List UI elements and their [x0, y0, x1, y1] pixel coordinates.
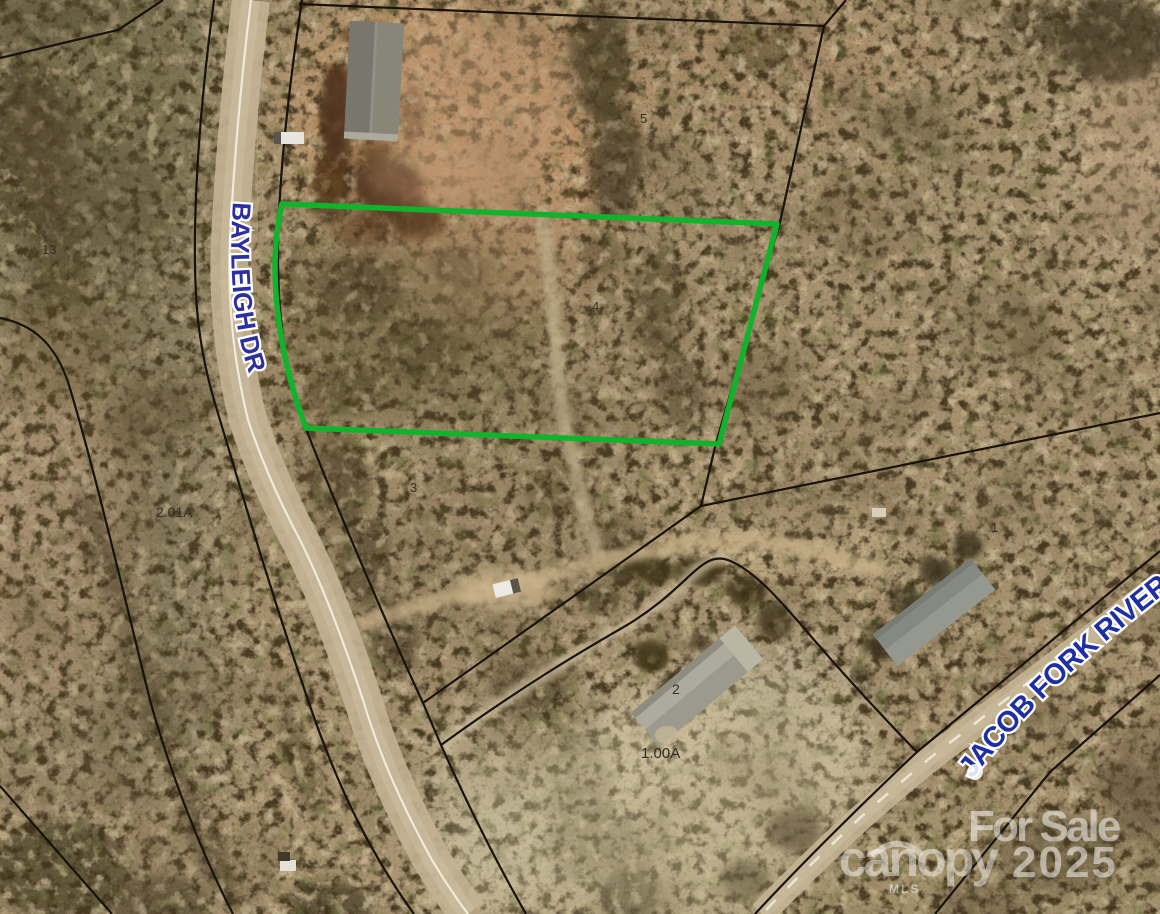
svg-text:2025: 2025 — [1012, 838, 1118, 887]
svg-text:2: 2 — [672, 681, 680, 697]
svg-text:5: 5 — [640, 111, 647, 126]
svg-text:13: 13 — [42, 242, 56, 257]
svg-text:1: 1 — [991, 520, 998, 535]
svg-text:1.00A: 1.00A — [641, 745, 680, 762]
svg-text:MLS: MLS — [889, 882, 920, 896]
svg-text:4: 4 — [592, 299, 599, 314]
svg-text:canopy: canopy — [839, 831, 999, 887]
svg-text:2.01A: 2.01A — [156, 504, 193, 520]
svg-text:3: 3 — [410, 480, 417, 495]
